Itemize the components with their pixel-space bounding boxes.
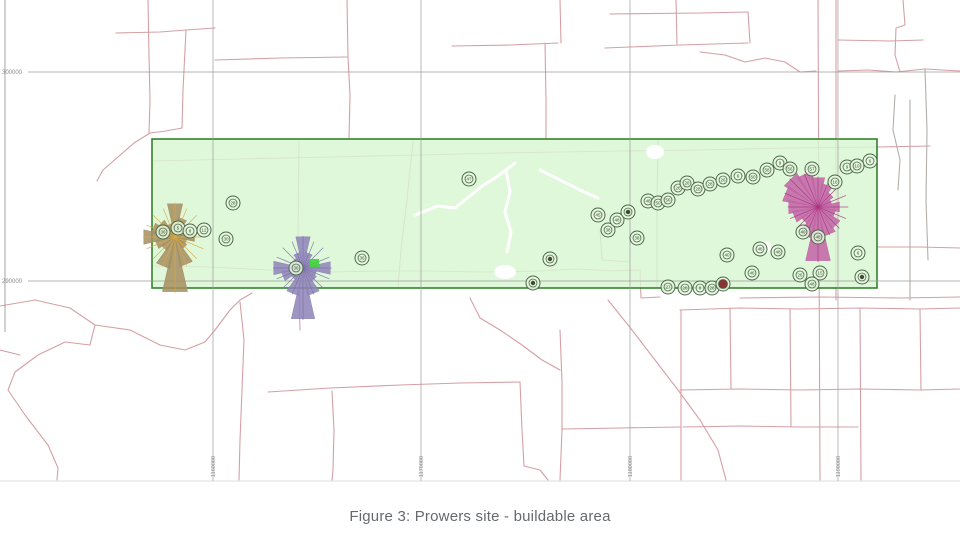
turbine-marker: 58	[760, 163, 774, 177]
marker-number: 36	[293, 266, 299, 271]
turbine-marker: 6	[863, 154, 877, 168]
turbine-marker: 48	[771, 245, 785, 259]
turbine-marker: 56	[783, 162, 797, 176]
road-line	[730, 308, 731, 389]
marker-number: 16	[832, 180, 838, 185]
turbine-marker	[526, 276, 540, 290]
road-line	[925, 69, 928, 260]
road-line	[680, 389, 960, 390]
turbine-marker: 28	[226, 196, 240, 210]
turbine-marker: 8	[183, 224, 197, 238]
turbine-marker: 48	[811, 230, 825, 244]
x-axis-tick-label: 1160000	[211, 456, 217, 477]
road-line	[268, 382, 520, 392]
turbine-marker: 28	[678, 281, 692, 295]
turbine-marker: 6	[731, 169, 745, 183]
turbine-marker: 36	[355, 251, 369, 265]
road-line	[790, 309, 791, 427]
x-axis-tick-label: 1170000	[419, 456, 425, 477]
turbine-marker: 16	[828, 175, 842, 189]
marker-number: 57	[809, 167, 815, 172]
road-line	[683, 426, 858, 427]
turbine-marker: 27	[661, 280, 675, 294]
turbine-marker: 8	[855, 270, 869, 284]
turbine-marker: 38	[630, 231, 644, 245]
turbine-marker: 6	[851, 246, 865, 260]
figure-page: 3000002900001160000117000011800001190000…	[0, 0, 960, 540]
map-figure: 3000002900001160000117000011800001190000…	[0, 0, 960, 483]
road-line	[182, 30, 186, 128]
marker-number: 38	[605, 228, 611, 233]
marker-number: 28	[709, 286, 715, 291]
road-line	[0, 350, 20, 355]
marker-red-dot	[719, 280, 728, 289]
pond	[646, 145, 664, 159]
road-line	[215, 57, 347, 60]
marker-number: 50	[655, 201, 661, 206]
marker-number: 36	[160, 230, 166, 235]
turbine-marker: 12	[197, 223, 211, 237]
turbine-marker: 47	[462, 172, 476, 186]
road-line	[0, 300, 95, 480]
turbine-marker: 26	[793, 268, 807, 282]
road-line	[470, 298, 560, 370]
marker-number: 28	[230, 201, 236, 206]
road-line	[610, 12, 748, 14]
road-line	[239, 302, 244, 480]
marker-number: 58	[764, 168, 770, 173]
road-line	[740, 297, 960, 298]
turbine-marker: 57	[805, 162, 819, 176]
marker-number: 26	[797, 273, 803, 278]
marker-number: 56	[787, 167, 793, 172]
road-line	[877, 146, 930, 147]
road-line	[920, 309, 921, 390]
marker-number: 48	[815, 235, 821, 240]
road-line	[452, 43, 558, 46]
road-line	[347, 0, 348, 57]
turbine-marker: 30	[219, 232, 233, 246]
marker-number: 28	[682, 286, 688, 291]
road-line	[116, 28, 215, 33]
road-line	[680, 308, 960, 310]
turbine-marker	[716, 277, 730, 291]
site-map: 3000002900001160000117000011800001190000…	[0, 0, 960, 483]
marker-dark-dot	[548, 257, 552, 261]
turbine-marker: 60	[746, 170, 760, 184]
marker-number: 46	[749, 271, 755, 276]
marker-number: 38	[634, 236, 640, 241]
turbine-marker	[543, 252, 557, 266]
road-line	[893, 95, 900, 190]
marker-number: 26	[675, 186, 681, 191]
turbine-marker: 48	[805, 277, 819, 291]
marker-dark-dot	[531, 281, 535, 285]
marker-number: 46	[625, 210, 631, 215]
y-axis-tick-label: 290000	[2, 279, 23, 285]
road-line	[95, 325, 215, 350]
marker-number: 48	[757, 247, 763, 252]
turbine-marker: 40	[796, 225, 810, 239]
figure-caption: Figure 3: Prowers site - buildable area	[0, 508, 960, 525]
road-line	[332, 391, 334, 480]
turbine-marker: 45	[591, 208, 605, 222]
turbine-marker: 40	[720, 248, 734, 262]
road-line	[148, 0, 150, 133]
turbine-marker: 46	[621, 205, 635, 219]
road-line	[700, 52, 816, 72]
road-line	[215, 293, 252, 330]
road-line	[860, 308, 861, 480]
marker-number: 36	[359, 256, 365, 261]
turbine-marker: 56	[661, 193, 675, 207]
marker-number: 48	[614, 218, 620, 223]
road-line	[150, 128, 182, 133]
road-line	[545, 43, 546, 139]
marker-number: 48	[809, 282, 815, 287]
road-line	[676, 0, 677, 44]
marker-number: 28	[695, 187, 701, 192]
road-line	[520, 382, 548, 480]
turbine-marker: 26	[716, 173, 730, 187]
buildable-area	[152, 139, 877, 288]
road-line	[560, 0, 561, 43]
marker-number: 15	[817, 271, 823, 276]
marker-number: 40	[800, 230, 806, 235]
marker-number: 45	[595, 213, 601, 218]
turbine-marker: 46	[745, 266, 759, 280]
marker-number: 48	[645, 199, 651, 204]
marker-number: 48	[775, 250, 781, 255]
marker-number: 56	[665, 198, 671, 203]
road-line	[348, 57, 350, 139]
marker-number: 47	[466, 177, 472, 182]
marker-number: 10	[854, 164, 860, 169]
x-axis-tick-label: 1190000	[836, 456, 842, 477]
marker-number: 40	[724, 253, 730, 258]
marker-number: 27	[665, 285, 671, 290]
road-line	[97, 133, 150, 181]
marker-number: 30	[223, 237, 229, 242]
y-axis-tick-label: 300000	[2, 70, 23, 76]
road-line	[877, 247, 960, 248]
turbine-marker: 36	[289, 261, 303, 275]
marker-number: 26	[720, 178, 726, 183]
turbine-marker: 36	[156, 225, 170, 239]
marker-number: 60	[750, 175, 756, 180]
marker-number: 28	[707, 182, 713, 187]
road-line	[562, 427, 680, 429]
road-line	[748, 12, 750, 43]
turbine-marker: 48	[753, 242, 767, 256]
road-line	[560, 330, 562, 480]
road-line	[895, 0, 905, 72]
site-square	[309, 259, 319, 267]
turbine-marker: 28	[703, 177, 717, 191]
road-line	[838, 40, 923, 41]
x-axis-tick-label: 1180000	[628, 456, 634, 477]
turbine-marker: 10	[850, 159, 864, 173]
marker-number: 12	[201, 228, 207, 233]
pond	[494, 265, 516, 279]
marker-number: 28	[684, 181, 690, 186]
